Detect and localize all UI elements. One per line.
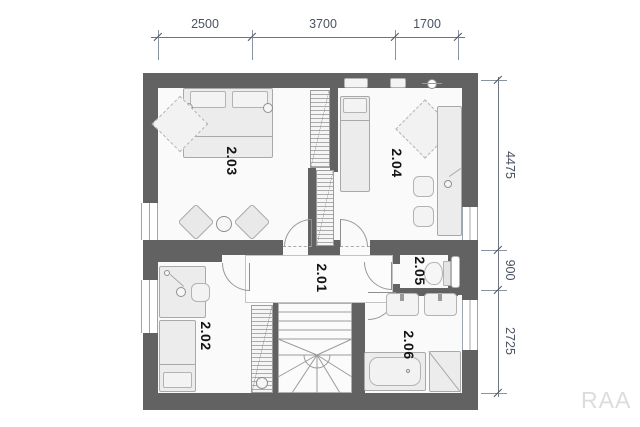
door-leaf-205	[391, 262, 392, 290]
dim-top-1: 2500	[191, 17, 219, 31]
dimension-line	[498, 77, 499, 397]
desk-chair	[191, 283, 210, 302]
blanket-line	[183, 136, 273, 137]
room-label-205: 2.05	[412, 256, 428, 285]
desk-lamp-base	[164, 270, 170, 276]
stairs-outline	[279, 304, 352, 393]
wall-center-upper	[330, 88, 338, 172]
extension-line	[481, 250, 507, 251]
dimension-line	[151, 37, 465, 38]
wall-left	[143, 88, 158, 410]
pillow	[190, 91, 226, 108]
watermark-logo: RAA	[581, 387, 631, 414]
extension-line	[481, 290, 507, 291]
wall-bottom	[143, 393, 478, 410]
door-leaf-203	[311, 219, 312, 247]
extension-line	[481, 80, 507, 81]
pendant-lamp	[263, 103, 273, 113]
wall-room202-top	[158, 252, 222, 262]
radiator-205	[451, 256, 460, 288]
door-leaf-204	[340, 219, 341, 247]
window-left-203	[141, 203, 158, 240]
toilet-tank	[443, 261, 451, 286]
room-label-202: 2.02	[198, 321, 214, 350]
ceiling-lamp-arm	[422, 83, 442, 84]
room-label-201: 2.01	[314, 263, 330, 292]
ceiling-lamp	[427, 79, 437, 89]
door-leaf-202	[249, 263, 250, 291]
dim-right-2: 900	[503, 260, 517, 281]
bathtub-drain	[406, 369, 410, 373]
faucet	[400, 294, 404, 301]
window-right-204	[462, 207, 478, 240]
shelf-books	[344, 78, 368, 88]
dim-right-1: 4475	[503, 151, 517, 179]
wardrobe-204	[316, 170, 334, 246]
window-left-202	[141, 280, 158, 333]
extension-line	[481, 393, 507, 394]
faucet	[438, 294, 442, 301]
bathtub-inner	[369, 357, 421, 386]
dim-right-3: 2725	[503, 327, 517, 355]
floor-plan: 2500 3700 1700 4475 900 2725	[0, 0, 640, 427]
desk-chair	[413, 206, 434, 227]
wall-divider-right	[370, 240, 462, 255]
wall-205-left-a	[393, 248, 400, 264]
dim-top-3: 1700	[413, 17, 441, 31]
pillow	[163, 372, 192, 388]
desk	[437, 106, 462, 236]
dim-top-2: 3700	[309, 17, 337, 31]
desk-chair	[413, 176, 434, 197]
desk-lamp	[176, 287, 186, 297]
stairs	[278, 303, 352, 393]
room-label-204: 2.04	[389, 148, 405, 177]
blanket-line	[159, 364, 196, 365]
window-right-206	[462, 300, 478, 350]
blanket-line	[340, 120, 370, 121]
room-label-203: 2.03	[224, 146, 240, 175]
room-label-206: 2.06	[401, 330, 417, 359]
wardrobe-202-knob	[256, 377, 268, 389]
shelf-books	[390, 78, 406, 88]
wardrobe-203	[310, 90, 330, 168]
desk-lamp	[444, 180, 452, 188]
pillow	[343, 98, 367, 113]
side-table	[216, 216, 232, 232]
